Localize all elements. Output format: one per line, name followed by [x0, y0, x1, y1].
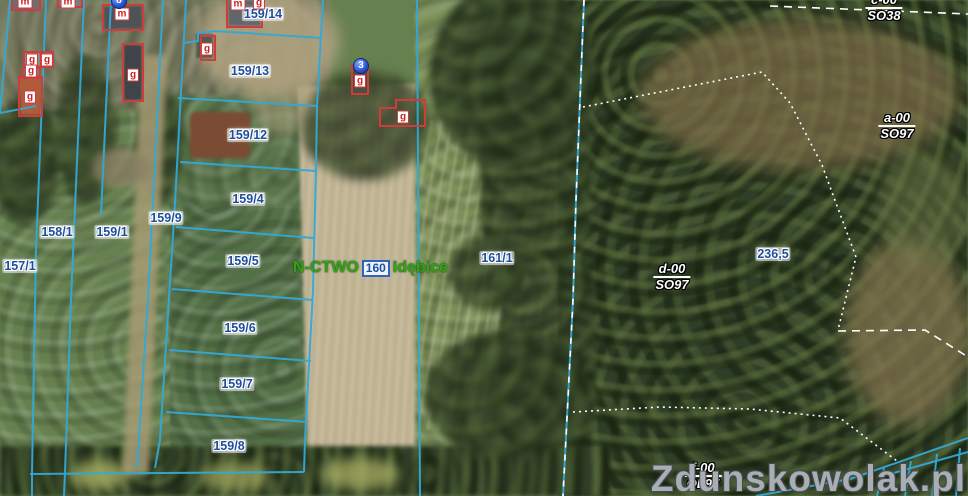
- parcel-number-label: 159/12: [227, 128, 269, 142]
- forest-compartment-code: d-00: [653, 262, 690, 278]
- forest-stand-code: SO38: [865, 9, 902, 23]
- forest-compartment-label: d-00SO97: [653, 262, 690, 292]
- building-type-label: m: [115, 8, 130, 21]
- forest-district-suffix: Idębice: [393, 259, 448, 277]
- building-type-label: m: [18, 0, 33, 9]
- building-type-label: g: [24, 91, 36, 104]
- forest-stand-code: SO97: [653, 278, 690, 292]
- parcel-number-label: 159/8: [211, 439, 246, 453]
- forest-district-number-box: 160: [362, 260, 390, 277]
- forest-compartment-label: a-00SO97: [878, 111, 915, 141]
- parcel-number-label: 159/1: [94, 225, 129, 239]
- elevation-point-label: 236,5: [755, 247, 790, 261]
- forest-compartment-label: c-00SO38: [865, 0, 902, 23]
- forest-district-label: N-CTWO 160 Idębice: [293, 259, 448, 277]
- map-marker-icon[interactable]: 3: [353, 58, 369, 74]
- parcel-number-label: 159/4: [230, 192, 265, 206]
- building-type-label: g: [354, 75, 366, 88]
- building-type-label: m: [231, 0, 246, 11]
- parcel-number-label: 158/1: [39, 225, 74, 239]
- parcel-number-label: 159/9: [148, 211, 183, 225]
- watermark: Zdunskowolak.pl: [651, 458, 966, 496]
- building-type-label: g: [253, 0, 265, 10]
- building-type-label: g: [201, 43, 213, 56]
- map-viewport[interactable]: N-CTWO 160 Idębice 157/1158/1159/1159/91…: [0, 0, 968, 496]
- forest-compartment-code: a-00: [878, 111, 915, 127]
- building-type-label: g: [41, 54, 53, 67]
- forest-district-prefix: N-CTWO: [293, 259, 359, 277]
- parcel-number-label: 159/6: [222, 321, 257, 335]
- map-labels-layer: N-CTWO 160 Idębice 157/1158/1159/1159/91…: [0, 0, 968, 496]
- building-type-label: m: [61, 0, 76, 9]
- parcel-number-label: 157/1: [2, 259, 37, 273]
- building-type-label: g: [25, 65, 37, 78]
- parcel-number-label: 159/13: [229, 64, 271, 78]
- building-type-label: g: [397, 111, 409, 124]
- parcel-number-label: 161/1: [479, 251, 514, 265]
- building-type-label: g: [127, 69, 139, 82]
- parcel-number-label: 159/7: [219, 377, 254, 391]
- parcel-number-label: 159/5: [225, 254, 260, 268]
- forest-stand-code: SO97: [878, 127, 915, 141]
